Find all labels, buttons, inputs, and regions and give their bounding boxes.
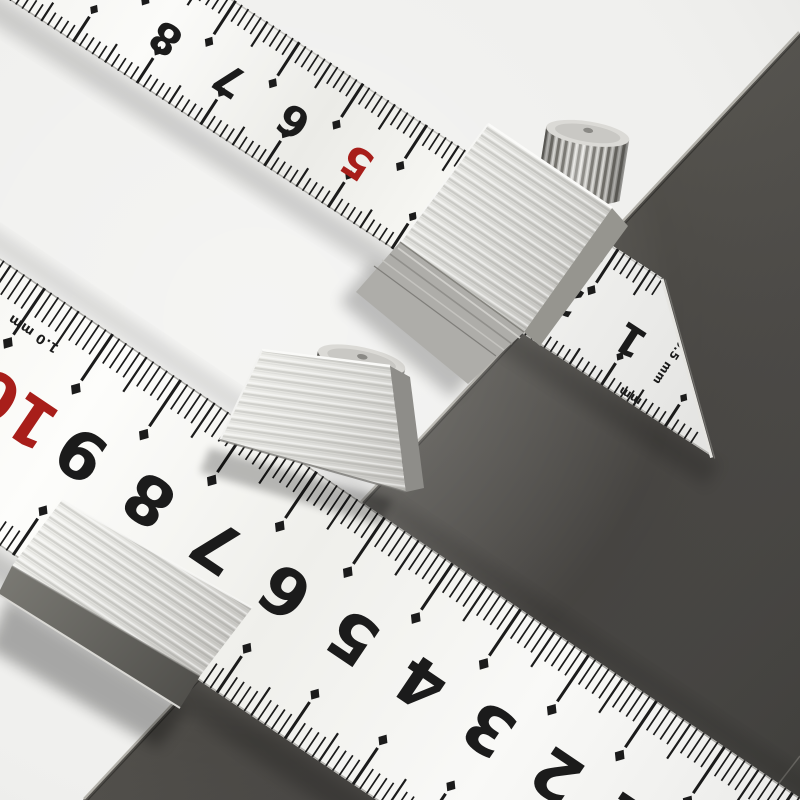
scene-canvas: 10 9 8 7 6 5 4 3 2 1 1.0 mm [0,0,800,800]
product-photo: 10 9 8 7 6 5 4 3 2 1 1.0 mm [0,0,800,800]
